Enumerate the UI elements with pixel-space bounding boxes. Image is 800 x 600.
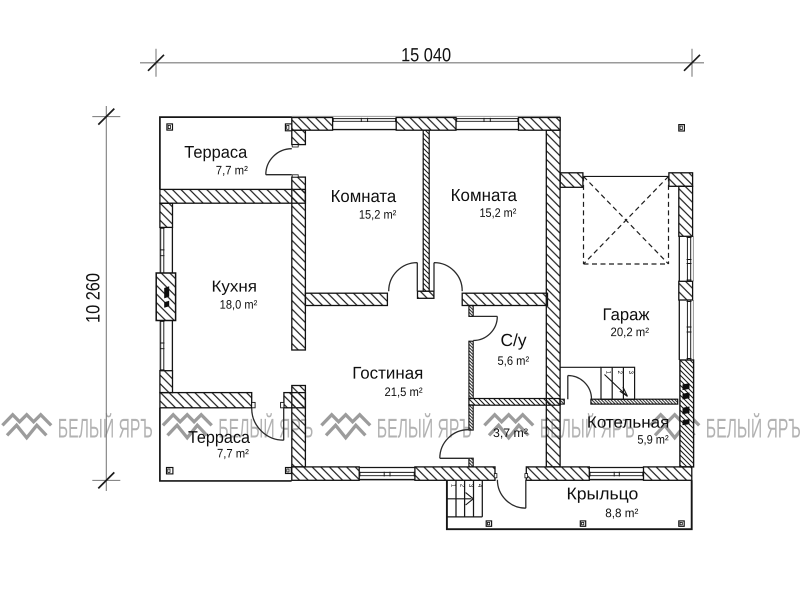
svg-text:С/у: С/у bbox=[500, 330, 526, 350]
svg-text:Гараж: Гараж bbox=[602, 305, 650, 324]
svg-text:Терраса: Терраса bbox=[188, 428, 251, 447]
svg-text:15,2 m²: 15,2 m² bbox=[359, 208, 397, 222]
svg-text:5,9 m²: 5,9 m² bbox=[637, 433, 668, 447]
svg-text:15 040: 15 040 bbox=[401, 45, 451, 66]
svg-text:10 260: 10 260 bbox=[83, 273, 104, 323]
svg-text:3,7 m²: 3,7 m² bbox=[493, 426, 528, 440]
svg-text:Котельная: Котельная bbox=[587, 414, 670, 432]
svg-text:Комната: Комната bbox=[331, 186, 397, 206]
svg-text:Гостиная: Гостиная bbox=[352, 364, 423, 383]
svg-text:Кухня: Кухня bbox=[211, 279, 257, 296]
svg-text:5,6 m²: 5,6 m² bbox=[498, 354, 530, 368]
svg-text:Терраса: Терраса bbox=[184, 143, 248, 162]
svg-text:18,0 m²: 18,0 m² bbox=[220, 298, 258, 312]
svg-text:15,2 m²: 15,2 m² bbox=[479, 206, 516, 220]
svg-text:8,8 m²: 8,8 m² bbox=[605, 506, 638, 520]
svg-text:7,7 m²: 7,7 m² bbox=[216, 163, 248, 177]
svg-text:21,5 m²: 21,5 m² bbox=[385, 385, 423, 399]
svg-text:7,7 m²: 7,7 m² bbox=[217, 446, 249, 460]
svg-text:20,2 m²: 20,2 m² bbox=[611, 325, 650, 339]
svg-text:Комната: Комната bbox=[451, 185, 518, 205]
svg-text:Крыльцо: Крыльцо bbox=[567, 484, 639, 503]
